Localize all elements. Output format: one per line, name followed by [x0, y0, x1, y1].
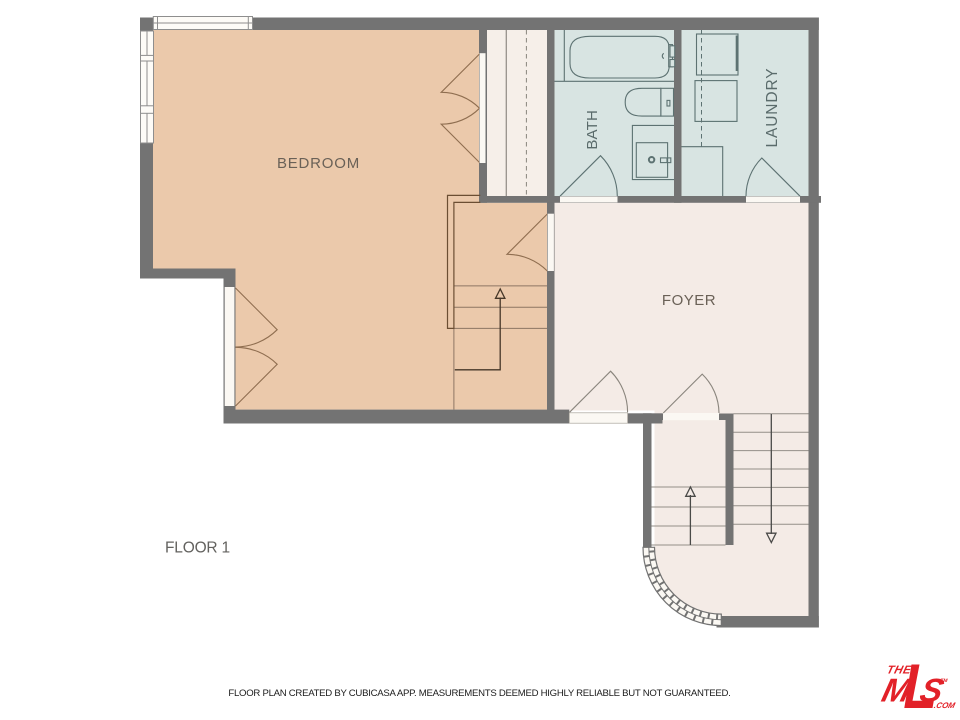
- svg-text:LAUNDRY: LAUNDRY: [764, 67, 781, 147]
- svg-text:FLOOR PLAN CREATED BY CUBICASA: FLOOR PLAN CREATED BY CUBICASA APP. MEAS…: [228, 688, 730, 699]
- svg-text:.COM: .COM: [933, 701, 956, 710]
- svg-text:TM: TM: [939, 678, 948, 684]
- svg-text:FLOOR 1: FLOOR 1: [165, 540, 230, 557]
- svg-text:BEDROOM: BEDROOM: [277, 155, 360, 172]
- svg-text:BATH: BATH: [584, 110, 601, 150]
- svg-text:FOYER: FOYER: [662, 292, 716, 309]
